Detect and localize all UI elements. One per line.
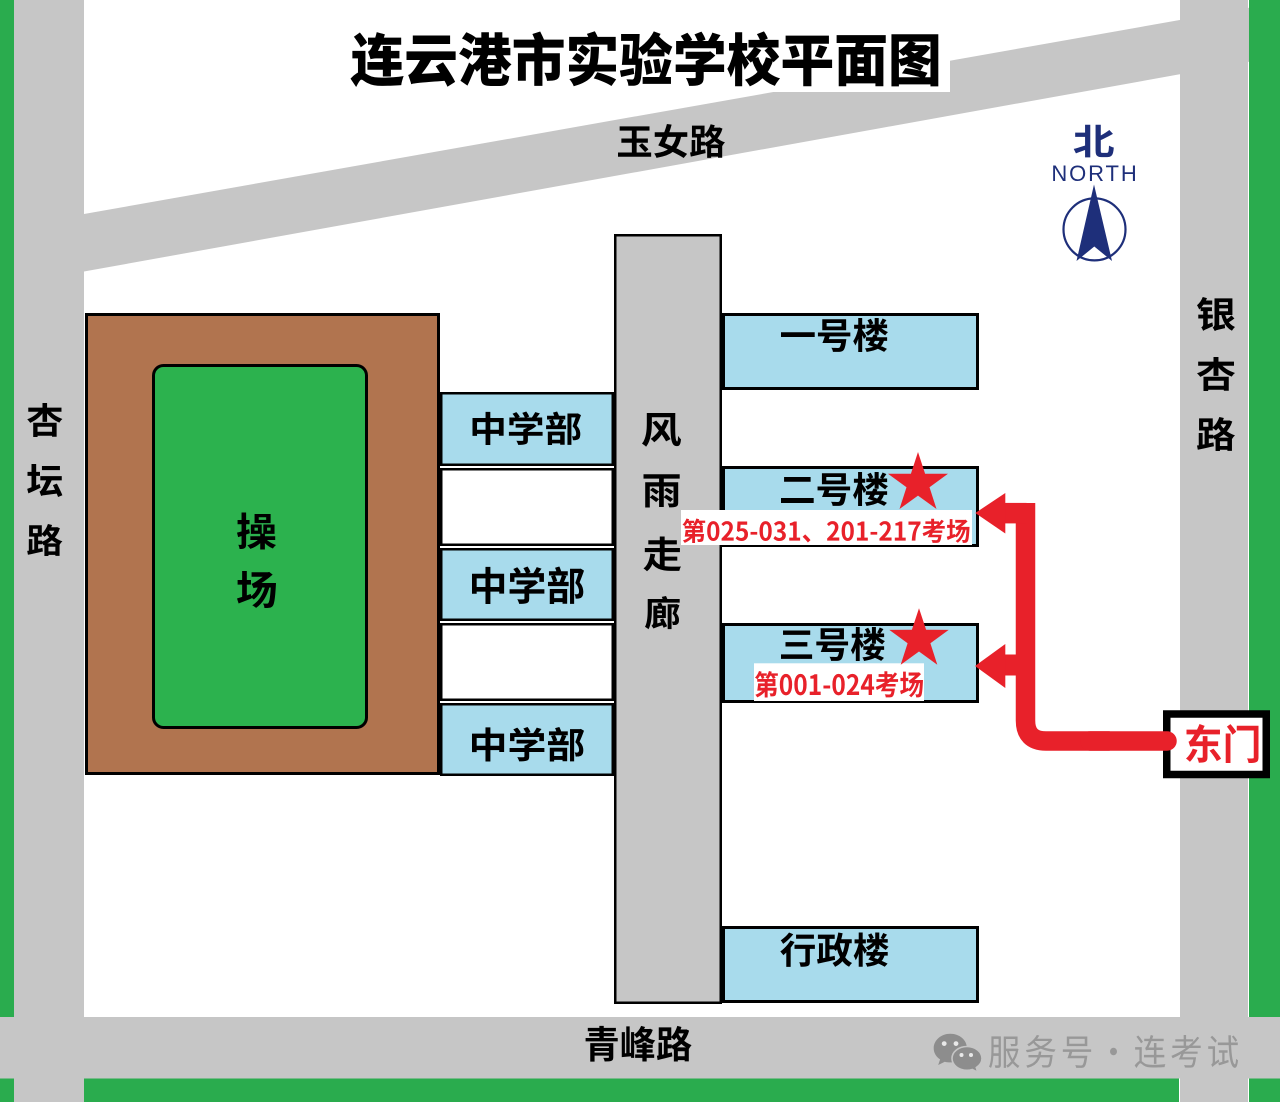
svg-text:NORTH: NORTH xyxy=(1051,161,1138,186)
